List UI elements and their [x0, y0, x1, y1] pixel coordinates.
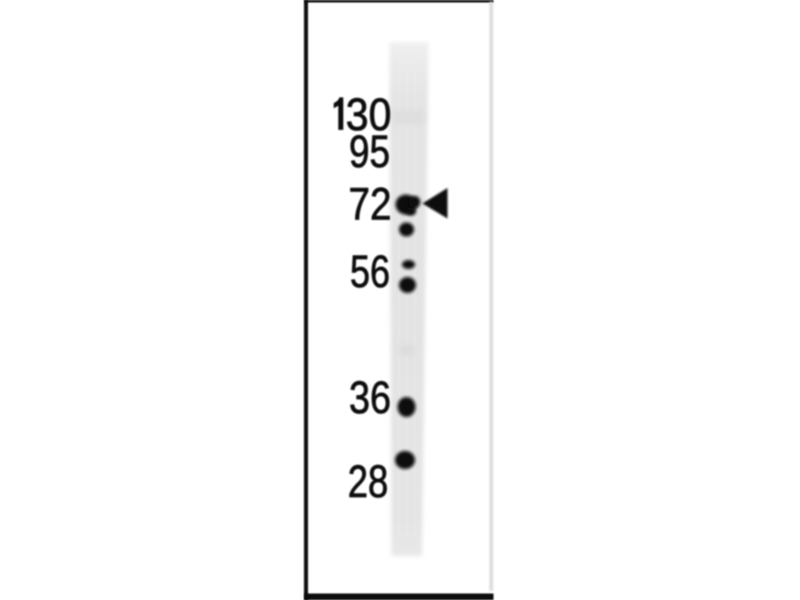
svg-text:72: 72: [349, 179, 392, 230]
svg-text:28: 28: [348, 456, 389, 507]
svg-text:95: 95: [349, 126, 390, 177]
svg-text:36: 36: [349, 372, 391, 423]
svg-text:56: 56: [350, 246, 390, 297]
